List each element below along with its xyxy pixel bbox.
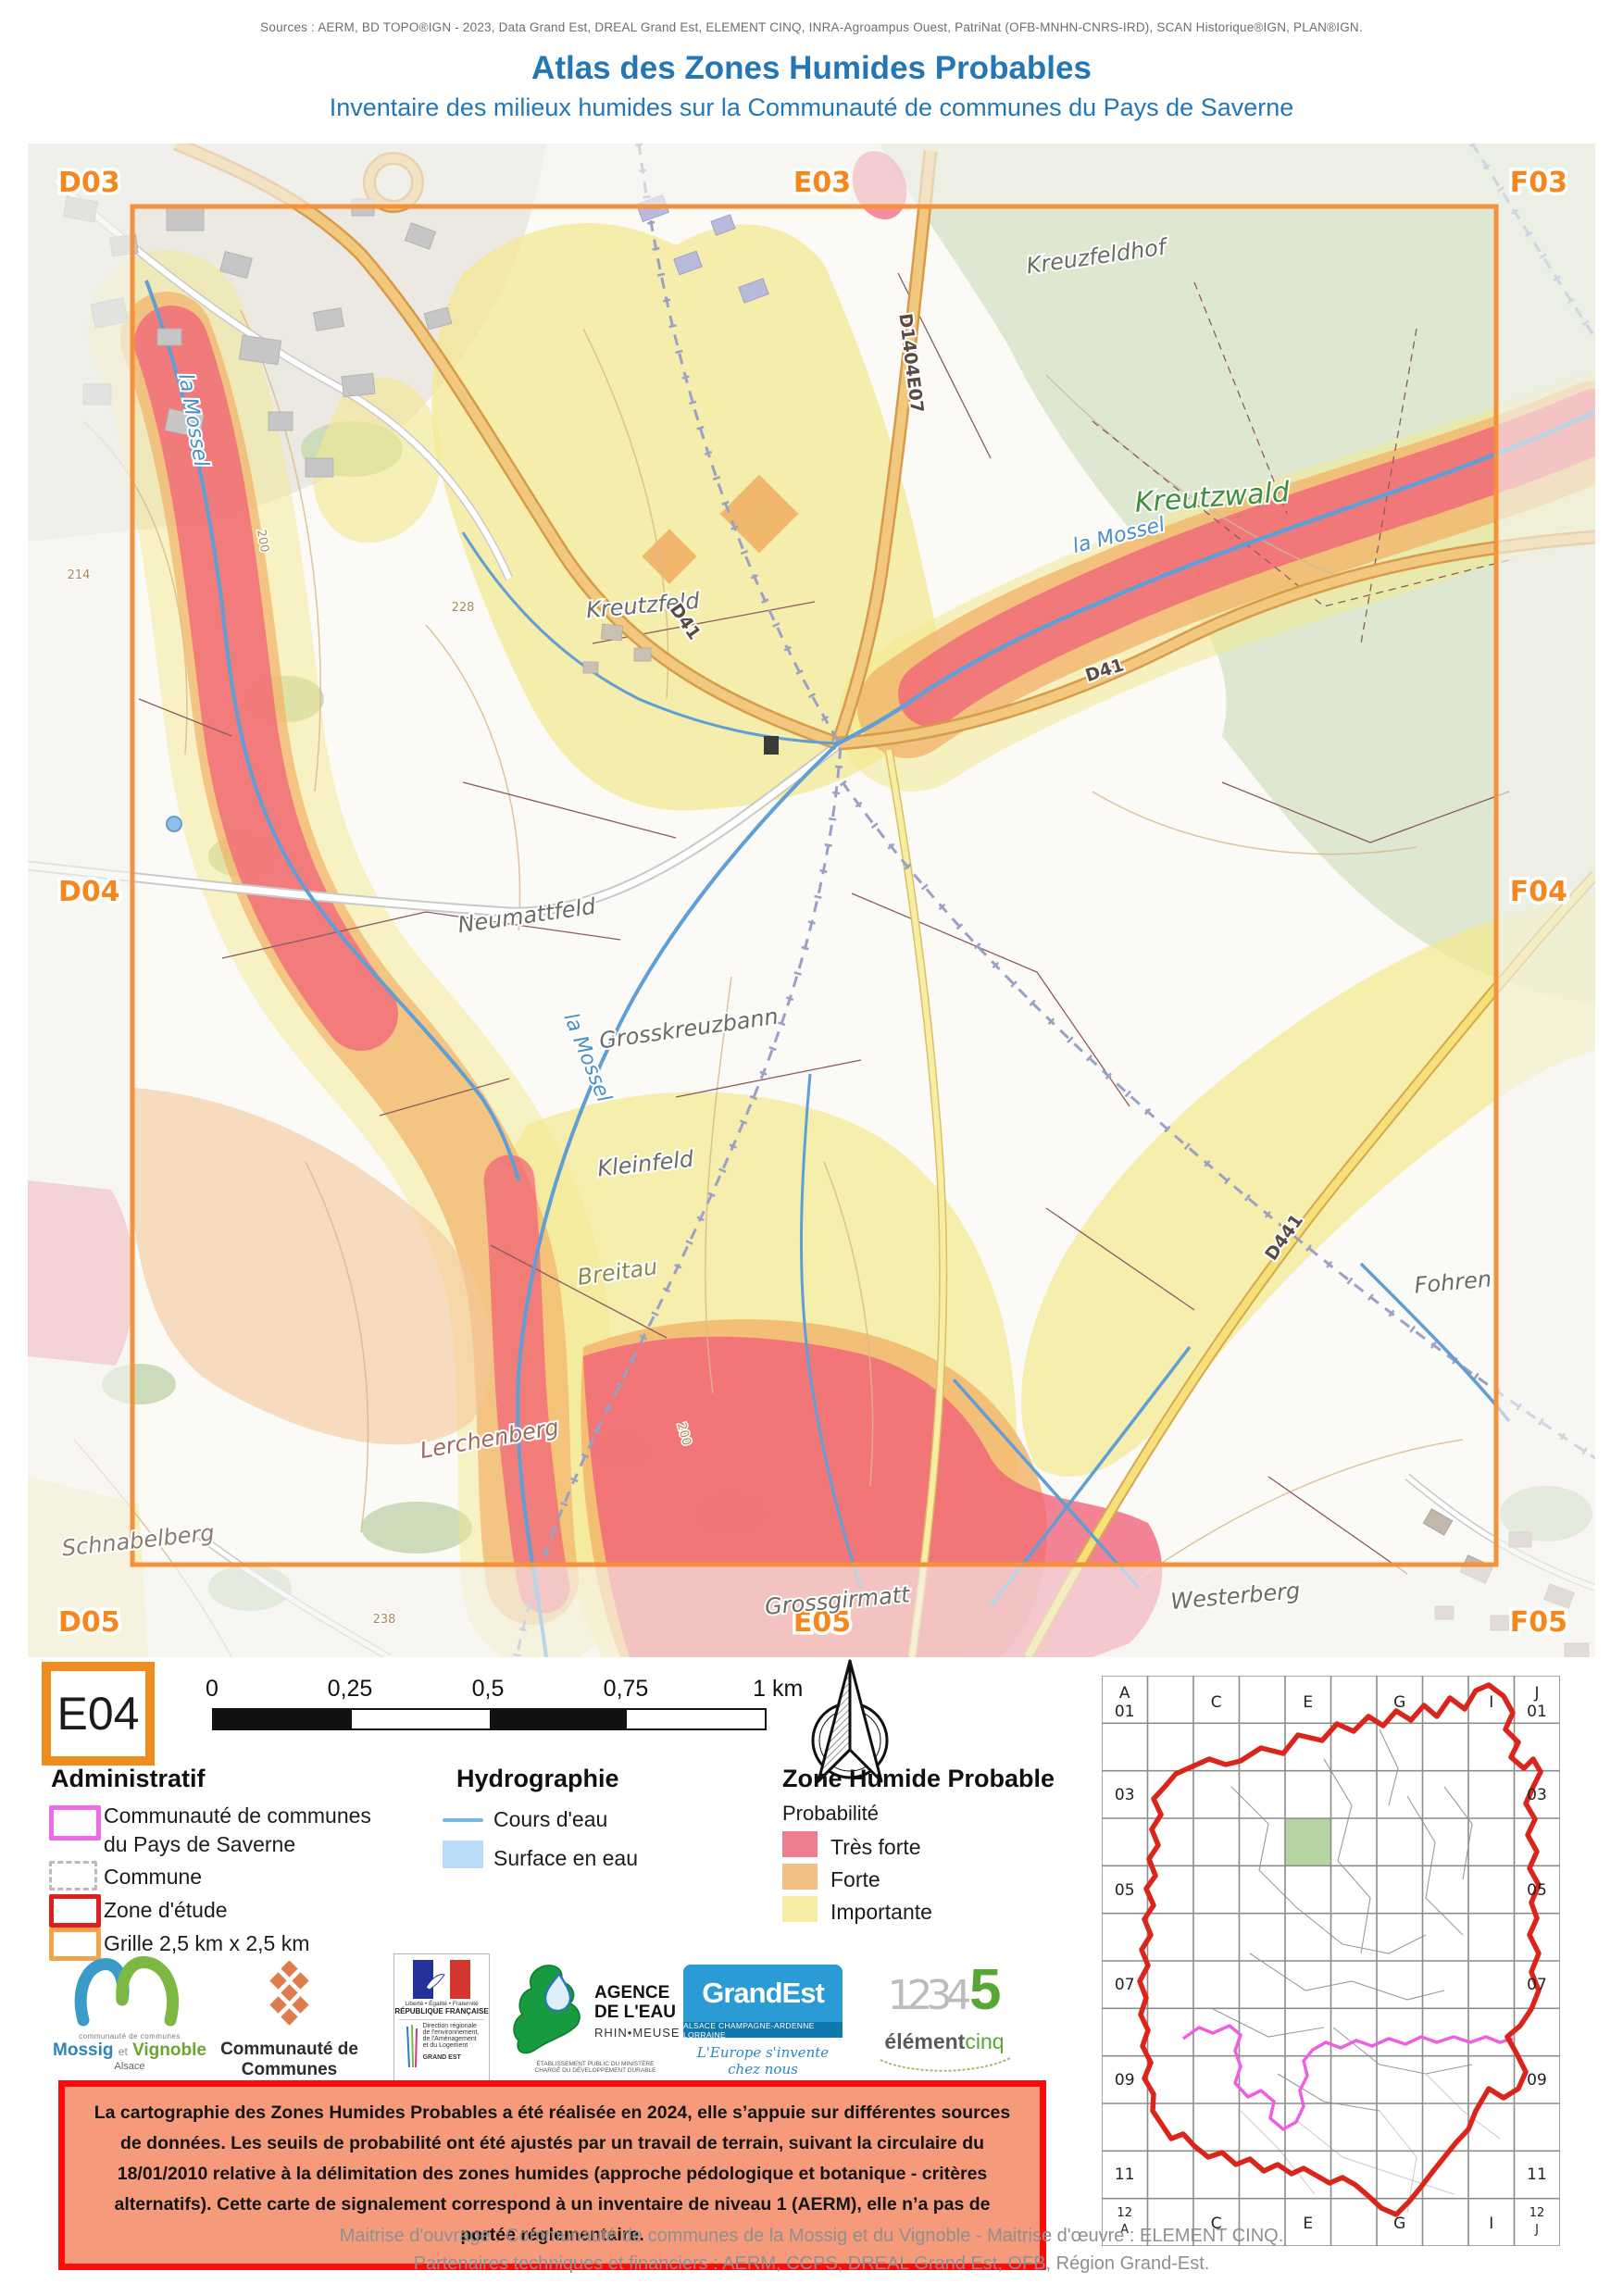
grid-label-f05: F05 [1510,1606,1567,1639]
grid-label-d04: D04 [58,876,120,908]
scale-tick-0: 0 [206,1676,218,1703]
grand-est-bar: ALSACE CHAMPAGNE-ARDENNE LORRAINE [683,2022,843,2038]
logo-agence-eau: AGENCE DE L'EAU RHIN•MEUSE ÉTABLISSEMENT… [507,1961,683,2074]
element5-digits: 1234 [888,1972,966,2019]
footer-line2: Partenaires techniques et financiers : A… [0,2253,1623,2275]
legend-item-tres-forte: Très forte [830,1833,921,1862]
ov-label-l11: 11 [1115,2165,1135,2184]
grand-est-name: GrandEst [702,1977,824,2010]
ov-label-g-top: G [1393,1693,1405,1712]
mossig-name-et: et [119,2045,128,2058]
scale-tick-05: 0,5 [472,1676,505,1703]
french-flag-icon [413,1960,470,1999]
spot-height-238: 238 [373,1613,396,1627]
logo-grand-est: GrandEst [683,1965,843,2022]
dreal-line2: de l'environnement, [423,2029,480,2036]
legend-item-cc-line2: du Pays de Saverne [104,1830,371,1859]
overview-highlight-cell [1285,1818,1331,1865]
ov-label-j: J [1533,1684,1539,1703]
element5-word-b: cinq [965,2029,1004,2053]
pond [167,817,181,831]
sources-line: Sources : AERM, BD TOPO®IGN - 2023, Data… [0,20,1623,34]
ov-label-l12: 12 [1117,2206,1132,2220]
warning-text: La cartographie des Zones Humides Probab… [94,2103,1010,2245]
logo-mossig-vignoble: communauté de communes Mossig et Vignobl… [46,1955,213,2072]
dreal-line1: Direction régionale [423,2023,480,2029]
grid-label-d03: D03 [58,167,120,199]
scale-bar [212,1708,767,1730]
legend-item-importante: Importante [830,1898,932,1927]
grand-est-tagline: L'Europe s'invente chez nous [683,2044,843,2078]
dreal-line3: de l'Aménagement [423,2036,480,2042]
logo-element-cinq: 1234 5 élémentcinq [866,1961,1023,2081]
aerm-l3: RHIN•MEUSE [594,2026,680,2040]
rf-motto: Liberté • Égalité • Fraternité [405,2001,478,2007]
legend-zhp-subtitle: Probabilité [782,1802,879,1826]
dreal-bars-icon [405,2023,419,2071]
aerm-l2: DE L'EAU [594,2003,680,2022]
ov-label-r07: 07 [1527,1976,1547,1994]
logo-rf-dreal: Liberté • Égalité • Fraternité RÉPUBLIQU… [393,1953,490,2096]
ov-label-r09: 09 [1527,2071,1547,2090]
aerm-l5: CHARGÉ DU DÉVELOPPEMENT DURABLE [507,2067,683,2074]
swatch-cc-pays-saverne [49,1805,101,1841]
overview-grid-map: A 01 C E G I J 01 03 05 07 09 11 12 A 03… [1102,1676,1560,2246]
legend-item-commune: Commune [104,1863,202,1891]
grid-label-e03: E03 [793,167,851,199]
grid-label-f04: F04 [1510,876,1567,908]
ov-label-r12: 12 [1529,2206,1545,2220]
logo-ccps: Communauté de Communes du Pays de Savern… [190,1961,389,2094]
legend-administratif-title: Administratif [51,1765,206,1793]
grid-label-f03: F03 [1510,167,1567,199]
agence-eau-france-icon [507,1961,593,2061]
aerm-l1: AGENCE [594,1983,680,2003]
element5-five: 5 [969,1958,1001,2022]
legend-hydrographie-title: Hydrographie [456,1765,619,1793]
footer-line1: Maitrise d'ouvrage : Communauté de commu… [0,2226,1623,2247]
scale-segment [352,1710,490,1728]
dreal-grandest: GRAND EST [423,2054,480,2061]
swatch-forte [782,1864,818,1890]
legend-item-cc-line1: Communauté de communes [104,1802,371,1830]
swatch-importante [782,1896,818,1922]
page-title: Atlas des Zones Humides Probables [0,50,1623,87]
legend-item-surface-eau: Surface en eau [493,1844,638,1873]
ov-label-l03: 03 [1115,1786,1135,1804]
ov-label-a01: 01 [1115,1703,1135,1721]
legend-item-zone-etude: Zone d'étude [104,1896,228,1925]
aerm-l4: ÉTABLISSEMENT PUBLIC DU MINISTÈRE [507,2061,683,2067]
ccps-diamonds-icon [260,1961,319,2035]
spot-height-228: 228 [452,601,475,615]
spot-height-214: 214 [68,568,91,582]
rf-name: RÉPUBLIQUE FRANÇAISE [394,2007,488,2015]
mossig-small-line: communauté de communes [46,2032,213,2040]
swatch-commune [49,1861,97,1890]
ov-label-l09: 09 [1115,2071,1135,2090]
ov-label-r05: 05 [1527,1881,1547,1900]
ov-label-r11: 11 [1527,2165,1547,2184]
main-map-canvas: D03 E03 F03 D04 F04 D05 E05 F05 Kreuzfel… [28,143,1595,1657]
scale-segment [490,1710,628,1728]
scale-tick-025: 0,25 [328,1676,373,1703]
legend-item-cc-label: Communauté de communes du Pays de Savern… [104,1802,371,1859]
swatch-tres-forte [782,1831,818,1857]
swatch-surface-eau [443,1841,483,1868]
scale-tick-1km: 1 km [753,1676,803,1703]
grid-label-d05: D05 [58,1606,120,1639]
scale-tick-075: 0,75 [604,1676,649,1703]
swatch-zone-etude [49,1894,101,1928]
legend-item-cours-eau: Cours d'eau [493,1805,607,1834]
ov-label-a: A [1119,1684,1130,1703]
ov-label-j01: 01 [1527,1703,1547,1721]
cell-id-label: E04 [57,1687,140,1741]
ov-label-r03: 03 [1527,1786,1547,1804]
ov-label-e-top: E [1303,1693,1313,1712]
ov-label-l07: 07 [1115,1976,1135,1994]
legend-item-grille: Grille 2,5 km x 2,5 km [104,1929,309,1958]
legend-zhp-title: Zone Humide Probable [782,1765,1055,1793]
page-subtitle: Inventaire des milieux humides sur la Co… [0,94,1623,122]
element5-swoosh-icon [875,2054,1014,2077]
chapel-building [764,736,779,755]
ov-label-i-top: I [1489,1693,1493,1712]
legend-item-forte: Forte [830,1865,880,1894]
mossig-region: Alsace [46,2061,213,2072]
swatch-cours-eau [443,1818,483,1822]
mossig-name-a: Mossig [53,2040,113,2060]
scale-segment [627,1710,765,1728]
mossig-m-icon [74,1955,185,2028]
ccps-line1: Communauté de Communes [190,2040,389,2080]
element5-word-a: élément [884,2029,965,2053]
cell-id-box: E04 [42,1662,155,1766]
ov-label-c-top: C [1211,1693,1222,1712]
atlas-page: Sources : AERM, BD TOPO®IGN - 2023, Data… [0,0,1623,2296]
dreal-line4: et du Logement [423,2042,480,2049]
ov-label-l05: 05 [1115,1881,1135,1900]
scale-segment [214,1710,352,1728]
